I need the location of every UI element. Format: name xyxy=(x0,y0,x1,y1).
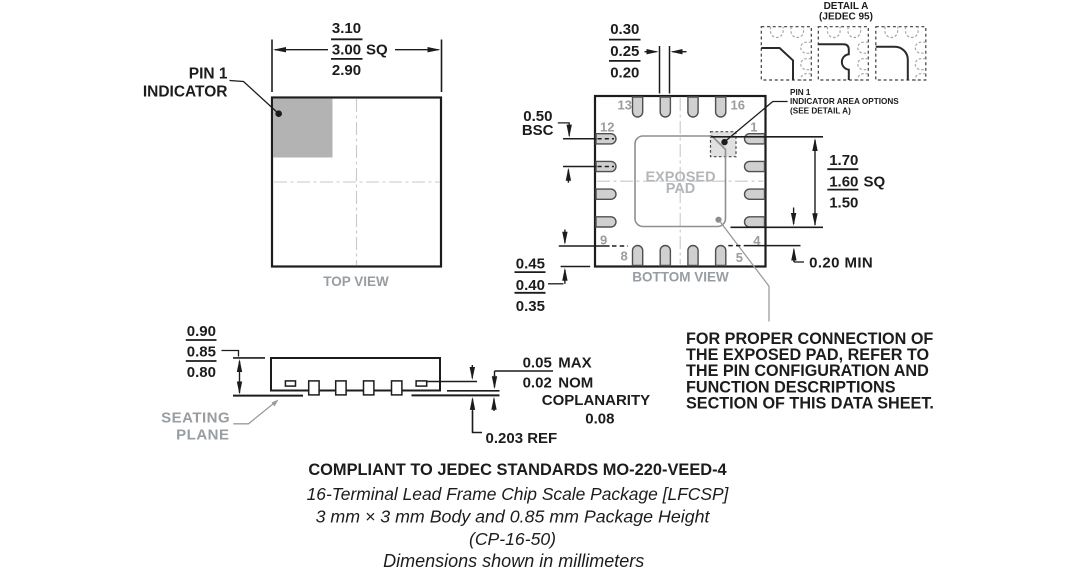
svg-text:0.20 MIN: 0.20 MIN xyxy=(809,254,873,271)
svg-text:13: 13 xyxy=(618,98,632,113)
svg-text:0.40: 0.40 xyxy=(516,277,545,294)
svg-text:0.35: 0.35 xyxy=(516,298,545,315)
svg-text:TOP VIEW: TOP VIEW xyxy=(323,274,389,289)
svg-text:0.08: 0.08 xyxy=(585,410,614,427)
svg-text:Dimensions shown in millimeter: Dimensions shown in millimeters xyxy=(383,551,644,568)
svg-text:PIN 1: PIN 1 xyxy=(189,66,228,83)
svg-text:12: 12 xyxy=(600,120,614,135)
svg-text:PIN 1: PIN 1 xyxy=(790,88,811,97)
svg-text:INDICATOR AREA OPTIONS: INDICATOR AREA OPTIONS xyxy=(790,97,899,106)
svg-text:1.70: 1.70 xyxy=(829,152,858,169)
svg-text:0.90: 0.90 xyxy=(187,323,216,340)
svg-text:COPLANARITY: COPLANARITY xyxy=(542,392,650,409)
svg-text:0.203 REF: 0.203 REF xyxy=(486,430,558,447)
svg-text:8: 8 xyxy=(621,249,628,264)
svg-text:16: 16 xyxy=(731,98,745,113)
svg-text:0.30: 0.30 xyxy=(610,21,639,38)
svg-text:3 mm × 3 mm Body and 0.85 mm P: 3 mm × 3 mm Body and 0.85 mm Package Hei… xyxy=(316,506,711,526)
svg-text:16-Terminal Lead Frame Chip Sc: 16-Terminal Lead Frame Chip Scale Packag… xyxy=(307,484,730,504)
svg-text:BOTTOM VIEW: BOTTOM VIEW xyxy=(632,269,729,284)
svg-text:(CP-16-50): (CP-16-50) xyxy=(469,529,556,549)
svg-text:BSC: BSC xyxy=(522,122,554,139)
svg-text:(SEE DETAIL A): (SEE DETAIL A) xyxy=(790,107,851,116)
svg-text:3.00: 3.00 xyxy=(332,42,361,59)
svg-text:NOM: NOM xyxy=(558,375,593,392)
svg-text:0.85: 0.85 xyxy=(187,343,216,360)
svg-text:0.25: 0.25 xyxy=(610,43,639,60)
svg-text:0.45: 0.45 xyxy=(516,255,545,272)
svg-text:0.20: 0.20 xyxy=(610,65,639,82)
svg-text:PAD: PAD xyxy=(666,181,696,197)
svg-text:SQ: SQ xyxy=(864,173,886,190)
svg-text:1.50: 1.50 xyxy=(829,195,858,212)
svg-text:0.80: 0.80 xyxy=(187,364,216,381)
svg-text:INDICATOR: INDICATOR xyxy=(143,83,228,100)
svg-text:MAX: MAX xyxy=(558,354,591,371)
svg-text:SECTION OF THIS DATA SHEET.: SECTION OF THIS DATA SHEET. xyxy=(686,394,934,412)
svg-text:(JEDEC 95): (JEDEC 95) xyxy=(819,11,873,22)
svg-text:SQ: SQ xyxy=(366,42,388,59)
svg-text:3.10: 3.10 xyxy=(332,20,361,37)
svg-text:5: 5 xyxy=(736,250,743,265)
svg-text:SEATING: SEATING xyxy=(161,410,230,427)
svg-text:COMPLIANT TO JEDEC STANDARDS M: COMPLIANT TO JEDEC STANDARDS MO-220-VEED… xyxy=(308,461,727,479)
svg-text:PLANE: PLANE xyxy=(176,427,229,444)
svg-text:0.02: 0.02 xyxy=(523,375,552,392)
svg-text:2.90: 2.90 xyxy=(332,62,361,79)
svg-text:1: 1 xyxy=(750,120,757,135)
svg-text:0.05: 0.05 xyxy=(523,354,552,371)
svg-text:1.60: 1.60 xyxy=(829,173,858,190)
